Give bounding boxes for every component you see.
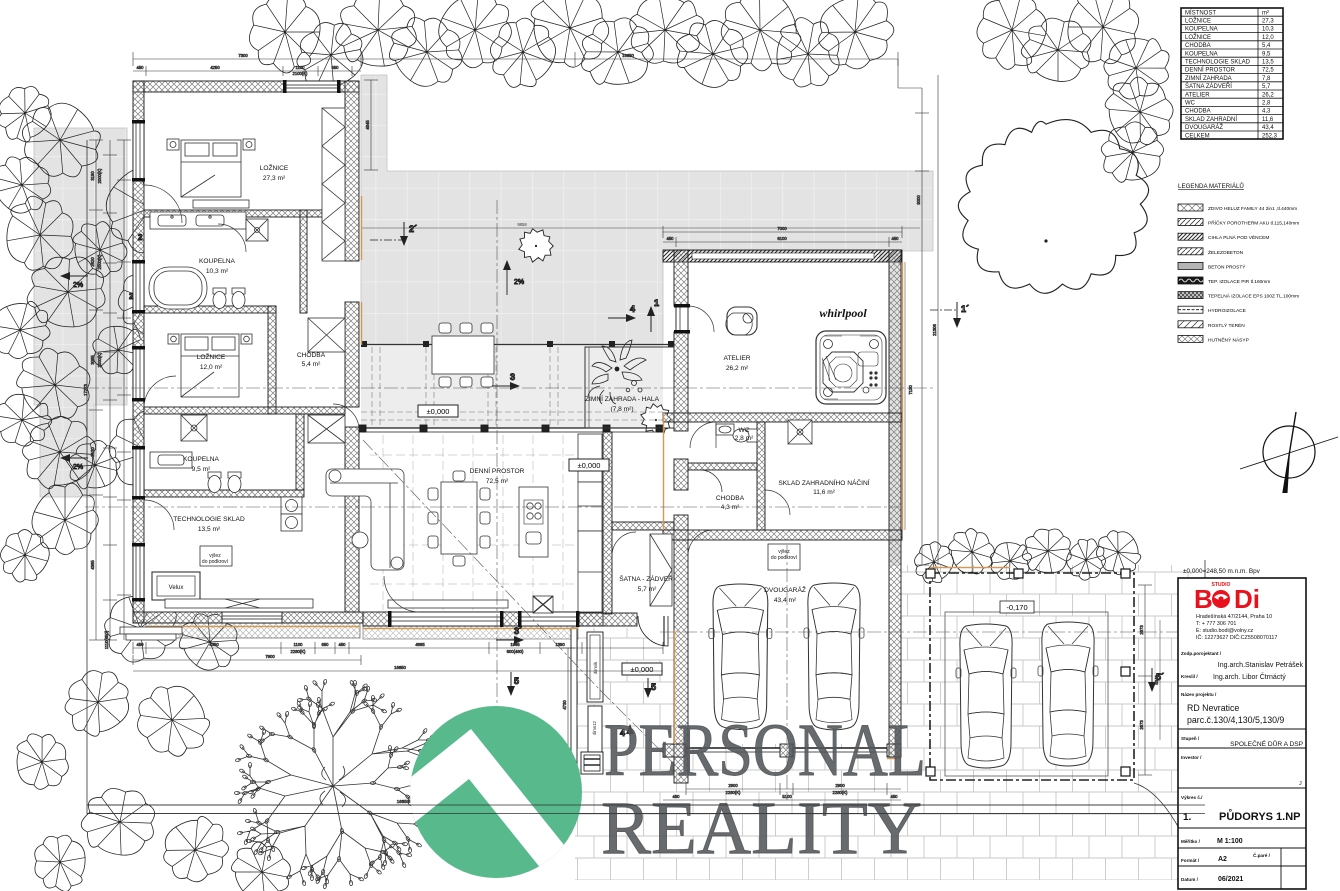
svg-text:4250: 4250 — [210, 65, 220, 70]
svg-text:2,8: 2,8 — [1262, 101, 1271, 107]
svg-text:27,3 m²: 27,3 m² — [263, 175, 286, 182]
svg-text:12,0: 12,0 — [1262, 35, 1274, 41]
svg-text:1390: 1390 — [555, 642, 565, 647]
svg-text:±0,000=248,50 m.n.m. Bpv: ±0,000=248,50 m.n.m. Bpv — [1183, 568, 1261, 575]
svg-text:CHODBA: CHODBA — [297, 352, 326, 359]
svg-text:KOUPELNA: KOUPELNA — [199, 258, 236, 265]
svg-text:9858: 9858 — [517, 222, 527, 227]
svg-text:KOUPELNA: KOUPELNA — [1185, 27, 1218, 33]
svg-text:B: B — [1194, 584, 1213, 614]
svg-text:9,5: 9,5 — [1262, 51, 1271, 57]
svg-text:CHODBA: CHODBA — [716, 495, 745, 502]
svg-text:WC: WC — [739, 427, 750, 434]
svg-text:STUDIO: STUDIO — [1212, 582, 1231, 588]
svg-text:ŠATNA ZÁDVEŘÍ: ŠATNA ZÁDVEŘÍ — [1185, 82, 1232, 90]
svg-text:J: J — [1299, 781, 1302, 787]
svg-text:DVOUGARÁŽ: DVOUGARÁŽ — [764, 585, 806, 594]
svg-text:MÍSTNOST: MÍSTNOST — [1185, 9, 1216, 16]
svg-text:do podkroví: do podkroví — [202, 559, 229, 565]
svg-text:parc.č.130/4,130/5,130/9: parc.č.130/4,130/5,130/9 — [1187, 715, 1284, 725]
svg-text:26,2 m²: 26,2 m² — [726, 365, 749, 372]
svg-text:KOUPELNA: KOUPELNA — [1185, 51, 1218, 57]
svg-text:dimník: dimník — [593, 661, 598, 674]
svg-text:2100(K): 2100(K) — [293, 71, 309, 76]
svg-text:2000(K): 2000(K) — [97, 352, 102, 368]
svg-text:600(480): 600(480) — [507, 649, 524, 654]
svg-text:12,0 m²: 12,0 m² — [200, 364, 223, 371]
svg-text:2000(K): 2000(K) — [97, 254, 102, 270]
svg-text:DVOUGARÁŽ: DVOUGARÁŽ — [1185, 123, 1223, 131]
svg-text:252,3: 252,3 — [1262, 133, 1278, 139]
svg-text:1110(650): 1110(650) — [104, 630, 109, 649]
svg-text:(7,8 m²): (7,8 m²) — [610, 406, 633, 413]
svg-text:Hradešínská 47/2144, Praha 10: Hradešínská 47/2144, Praha 10 — [1196, 614, 1272, 620]
svg-text:m²: m² — [1262, 10, 1269, 16]
svg-text:4,3: 4,3 — [1262, 109, 1271, 115]
svg-text:ATELIER: ATELIER — [724, 355, 751, 362]
svg-text:4350: 4350 — [209, 642, 219, 647]
svg-text:M 1:100: M 1:100 — [1217, 838, 1243, 845]
svg-text:7000: 7000 — [777, 226, 787, 231]
svg-text:450: 450 — [339, 642, 347, 647]
svg-text:Velux: Velux — [169, 585, 184, 591]
svg-text:2620: 2620 — [90, 257, 95, 267]
svg-text:2: 2 — [138, 233, 143, 242]
svg-text:SKLAD ZAHRADNÍHO NÁČINÍ: SKLAD ZAHRADNÍHO NÁČINÍ — [778, 478, 869, 487]
svg-text:TECHNOLOGIE SKLAD: TECHNOLOGIE SKLAD — [1185, 60, 1251, 66]
svg-text:9000: 9000 — [916, 195, 921, 205]
svg-text:KOUPELNA: KOUPELNA — [183, 456, 220, 463]
svg-text:13,5 m²: 13,5 m² — [198, 526, 221, 533]
svg-text:ROSTLÝ TERÉN: ROSTLÝ TERÉN — [1208, 322, 1245, 329]
svg-text:2%: 2% — [514, 279, 524, 286]
svg-text:2673: 2673 — [1139, 720, 1144, 730]
svg-text:TECHNOLOGIE SKLAD: TECHNOLOGIE SKLAD — [173, 516, 245, 523]
svg-text:4730: 4730 — [562, 700, 567, 710]
svg-text:LOŽNICE: LOŽNICE — [197, 352, 226, 361]
svg-text:WC: WC — [1185, 101, 1196, 107]
svg-text:-0,170: -0,170 — [1006, 603, 1027, 612]
svg-text:43,4: 43,4 — [1262, 125, 1274, 131]
svg-text:E: studio.bodi@volny.cz: E: studio.bodi@volny.cz — [1196, 628, 1254, 634]
svg-text:Č.paré /: Č.paré / — [1253, 852, 1271, 858]
svg-text:9,5 m²: 9,5 m² — [192, 466, 211, 473]
svg-text:A2: A2 — [1218, 856, 1227, 863]
svg-text:ATELIER: ATELIER — [1185, 92, 1210, 98]
svg-text:LOŽNICE: LOŽNICE — [260, 163, 289, 172]
svg-text:do podkroví: do podkroví — [771, 555, 798, 561]
svg-text:TEPELNÁ IZOLACE EPS 100Z TL.10: TEPELNÁ IZOLACE EPS 100Z TL.100mm — [1208, 293, 1299, 300]
svg-text:±0,000: ±0,000 — [427, 407, 450, 416]
svg-text:7900: 7900 — [265, 654, 275, 659]
svg-text:450: 450 — [137, 642, 145, 647]
svg-text:ŠATNA - ZÁDVEŘÍ: ŠATNA - ZÁDVEŘÍ — [619, 574, 675, 583]
svg-text:72,5 m²: 72,5 m² — [486, 478, 509, 485]
svg-text:PERSONAL: PERSONAL — [604, 709, 926, 792]
svg-text:LOŽNICE: LOŽNICE — [1185, 33, 1211, 41]
svg-text:3: 3 — [510, 372, 515, 382]
svg-text:2000(K): 2000(K) — [97, 168, 102, 184]
svg-text:7130: 7130 — [908, 385, 913, 395]
svg-text:Stupeň /: Stupeň / — [1181, 736, 1200, 741]
svg-text:7300: 7300 — [238, 53, 248, 58]
svg-text:4365: 4365 — [90, 560, 95, 570]
svg-text:Název projektu /: Název projektu / — [1181, 692, 1217, 697]
svg-text:TEP. IZOLACE PIR tl.160mm: TEP. IZOLACE PIR tl.160mm — [1208, 279, 1270, 285]
svg-text:16850: 16850 — [394, 665, 406, 670]
svg-text:27,3: 27,3 — [1262, 19, 1274, 25]
svg-text:16850: 16850 — [622, 53, 634, 58]
svg-text:Kreslil /: Kreslil / — [1181, 674, 1198, 679]
svg-text:1100: 1100 — [293, 642, 303, 647]
svg-text:11,6: 11,6 — [1262, 117, 1274, 123]
svg-text:Formát /: Formát / — [1181, 858, 1200, 863]
svg-text:5,4: 5,4 — [1262, 43, 1271, 49]
svg-text:2: 2 — [129, 292, 134, 301]
svg-text:4,3 m²: 4,3 m² — [721, 504, 740, 511]
svg-text:450: 450 — [892, 236, 900, 241]
svg-text:SKLAD ZAHRADNÍ: SKLAD ZAHRADNÍ — [1185, 116, 1237, 123]
svg-text:1100: 1100 — [295, 65, 305, 70]
svg-text:2´: 2´ — [409, 224, 417, 234]
svg-text:2673: 2673 — [1139, 625, 1144, 635]
svg-text:PŮDORYS 1.NP: PŮDORYS 1.NP — [1219, 809, 1301, 823]
svg-text:Ing.arch.Stanislav Petrášek: Ing.arch.Stanislav Petrášek — [1218, 662, 1304, 669]
svg-text:ZDIVO HELUZ FAMILY 44 2in1 ,t: ZDIVO HELUZ FAMILY 44 2in1 ,tl.440mm — [1208, 206, 1297, 212]
svg-text:RD Nevratice: RD Nevratice — [1187, 703, 1239, 713]
svg-text:2280(K): 2280(K) — [291, 649, 307, 654]
svg-text:72,5: 72,5 — [1262, 68, 1274, 74]
svg-text:650: 650 — [332, 65, 340, 70]
svg-text:SPOLEČNÉ DŮR A DSP: SPOLEČNÉ DŮR A DSP — [1230, 739, 1304, 748]
svg-text:DENNÍ PROSTOR: DENNÍ PROSTOR — [1185, 67, 1236, 74]
svg-text:4845: 4845 — [365, 120, 370, 130]
svg-text:T: + 777 306 701: T: + 777 306 701 — [1196, 621, 1236, 627]
svg-text:IČ: 12273627 DIČ:CZ5508070117: IČ: 12273627 DIČ:CZ5508070117 — [1196, 634, 1277, 641]
svg-text:3085: 3085 — [90, 355, 95, 365]
svg-text:10,3 m²: 10,3 m² — [206, 268, 229, 275]
svg-text:2%: 2% — [73, 282, 83, 289]
svg-text:7,8: 7,8 — [1262, 76, 1271, 82]
svg-text:2,8 m²: 2,8 m² — [735, 435, 754, 442]
svg-text:3190: 3190 — [90, 171, 95, 181]
svg-text:5,7 m²: 5,7 m² — [638, 586, 657, 593]
svg-text:CHODBA: CHODBA — [1185, 109, 1211, 115]
svg-text:16850: 16850 — [397, 799, 410, 804]
svg-text:2%: 2% — [73, 464, 83, 471]
svg-text:Výkres č./: Výkres č./ — [1181, 795, 1203, 800]
svg-text:11,6 m²: 11,6 m² — [813, 489, 836, 496]
svg-text:21306: 21306 — [932, 324, 937, 336]
svg-text:4885: 4885 — [415, 642, 425, 647]
svg-text:Di: Di — [1234, 584, 1260, 614]
svg-text:ZIMNÍ ZAHRADA - HALA: ZIMNÍ ZAHRADA - HALA — [585, 394, 660, 403]
svg-text:3´: 3´ — [514, 626, 522, 636]
svg-text:43,4 m²: 43,4 m² — [774, 597, 797, 604]
svg-text:Zodp.porojektant /: Zodp.porojektant / — [1181, 651, 1222, 656]
svg-text:±0,000: ±0,000 — [631, 665, 654, 674]
svg-text:26,2: 26,2 — [1262, 92, 1274, 98]
svg-text:whirlpool: whirlpool — [819, 306, 867, 320]
svg-text:LEGENDA MATERIÁLŮ: LEGENDA MATERIÁLŮ — [1178, 183, 1244, 190]
svg-text:5: 5 — [514, 676, 519, 686]
svg-text:1´: 1´ — [961, 304, 969, 314]
svg-text:2120: 2120 — [90, 447, 95, 457]
svg-text:4: 4 — [630, 304, 635, 314]
svg-text:Měřítko /: Měřítko / — [1181, 839, 1201, 844]
svg-text:5,7: 5,7 — [1262, 84, 1271, 90]
svg-text:Datum /: Datum / — [1181, 877, 1199, 882]
svg-text:BETON PROSTÝ: BETON PROSTÝ — [1208, 263, 1246, 270]
svg-text:5346: 5346 — [1154, 675, 1159, 685]
svg-text:6100: 6100 — [777, 236, 787, 241]
svg-text:13,5: 13,5 — [1262, 60, 1274, 66]
svg-text:5: 5 — [651, 682, 656, 692]
svg-text:±0,000: ±0,000 — [578, 461, 601, 470]
svg-text:1: 1 — [654, 298, 659, 308]
svg-text:Investor /: Investor / — [1181, 755, 1202, 760]
svg-text:LOŽNICE: LOŽNICE — [1185, 17, 1211, 25]
svg-text:ZIMNÍ ZAHRADA: ZIMNÍ ZAHRADA — [1185, 75, 1232, 82]
svg-text:650: 650 — [322, 642, 330, 647]
svg-text:10,3: 10,3 — [1262, 27, 1274, 33]
svg-text:CELKEM: CELKEM — [1185, 133, 1210, 139]
svg-text:450: 450 — [667, 236, 675, 241]
svg-text:HYDROIZOLACE: HYDROIZOLACE — [1208, 308, 1246, 314]
svg-text:Ing.arch. Libor Čtrnáctý: Ing.arch. Libor Čtrnáctý — [1213, 672, 1286, 681]
svg-text:450: 450 — [137, 65, 145, 70]
svg-text:06/2021: 06/2021 — [1218, 876, 1243, 883]
svg-text:dimn12: dimn12 — [592, 720, 597, 734]
svg-text:5,4 m²: 5,4 m² — [302, 361, 321, 368]
svg-text:REALITY: REALITY — [601, 787, 922, 870]
svg-text:1965: 1965 — [510, 642, 520, 647]
svg-text:CHODBA: CHODBA — [1185, 43, 1211, 49]
